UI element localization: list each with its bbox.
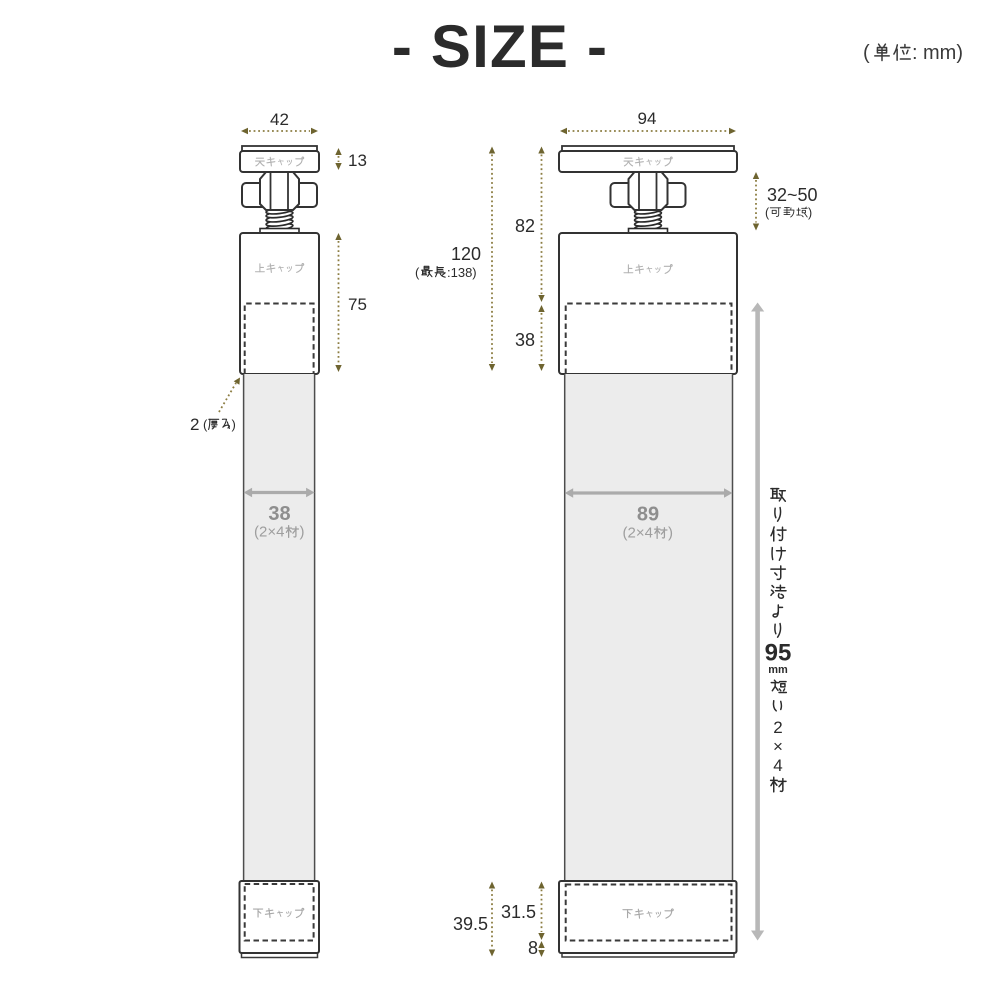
svg-text:42: 42 bbox=[270, 110, 289, 129]
svg-text:13: 13 bbox=[348, 151, 367, 170]
svg-text:31.5: 31.5 bbox=[501, 902, 536, 922]
svg-text:(2×4: (2×4 bbox=[623, 525, 653, 542]
svg-text:32~50: 32~50 bbox=[767, 185, 818, 205]
svg-text:(: ( bbox=[415, 265, 420, 280]
svg-text:120: 120 bbox=[451, 244, 481, 264]
svg-text:95: 95 bbox=[765, 640, 792, 667]
svg-text:mm: mm bbox=[768, 664, 788, 676]
svg-text:): ) bbox=[808, 206, 812, 220]
svg-text:4: 4 bbox=[773, 756, 782, 775]
svg-text:×: × bbox=[773, 737, 783, 756]
svg-text:89: 89 bbox=[637, 504, 659, 526]
svg-text:(: ( bbox=[203, 417, 208, 432]
svg-text::: : bbox=[912, 42, 918, 64]
svg-text:): ) bbox=[668, 525, 673, 542]
svg-text:38: 38 bbox=[515, 330, 535, 350]
svg-text:(: ( bbox=[863, 42, 870, 64]
svg-text:75: 75 bbox=[348, 295, 367, 314]
svg-text:2: 2 bbox=[190, 415, 199, 434]
svg-text:(2×4: (2×4 bbox=[254, 524, 284, 541]
svg-text::138): :138) bbox=[447, 265, 477, 280]
svg-text:- SIZE -: - SIZE - bbox=[392, 13, 608, 80]
svg-text:8: 8 bbox=[528, 938, 538, 958]
svg-text:94: 94 bbox=[638, 109, 657, 128]
svg-text:): ) bbox=[300, 524, 305, 541]
svg-text:2: 2 bbox=[773, 718, 782, 737]
svg-text:39.5: 39.5 bbox=[453, 914, 488, 934]
svg-text:82: 82 bbox=[515, 216, 535, 236]
svg-text:38: 38 bbox=[268, 503, 290, 525]
svg-text:): ) bbox=[232, 417, 236, 432]
svg-text:mm): mm) bbox=[923, 42, 963, 64]
